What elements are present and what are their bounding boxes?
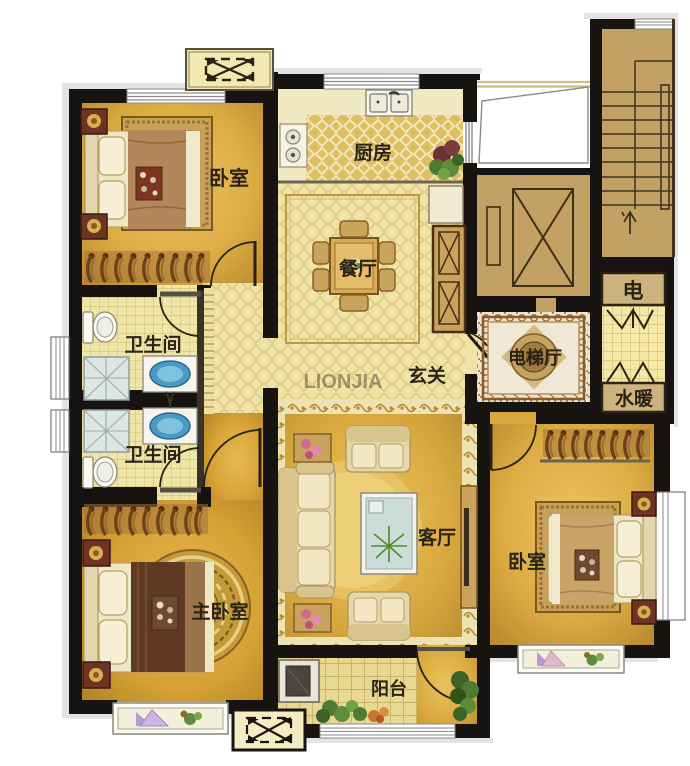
svg-text:主卧室: 主卧室 — [191, 600, 248, 623]
svg-text:LIONJIA: LIONJIA — [304, 371, 383, 393]
svg-text:玄关: 玄关 — [408, 364, 446, 387]
svg-text:阳台: 阳台 — [371, 678, 407, 699]
svg-text:卫生间: 卫生间 — [124, 443, 181, 466]
svg-text:卫生间: 卫生间 — [124, 333, 181, 356]
svg-text:餐厅: 餐厅 — [339, 257, 377, 280]
svg-text:客厅: 客厅 — [418, 526, 456, 549]
svg-text:卧室: 卧室 — [209, 166, 249, 190]
svg-text:卧室: 卧室 — [508, 550, 546, 573]
svg-text:厨房: 厨房 — [354, 141, 392, 164]
svg-text:电: 电 — [623, 280, 644, 303]
svg-text:电梯厅: 电梯厅 — [508, 347, 562, 368]
svg-text:水暖: 水暖 — [615, 387, 654, 410]
